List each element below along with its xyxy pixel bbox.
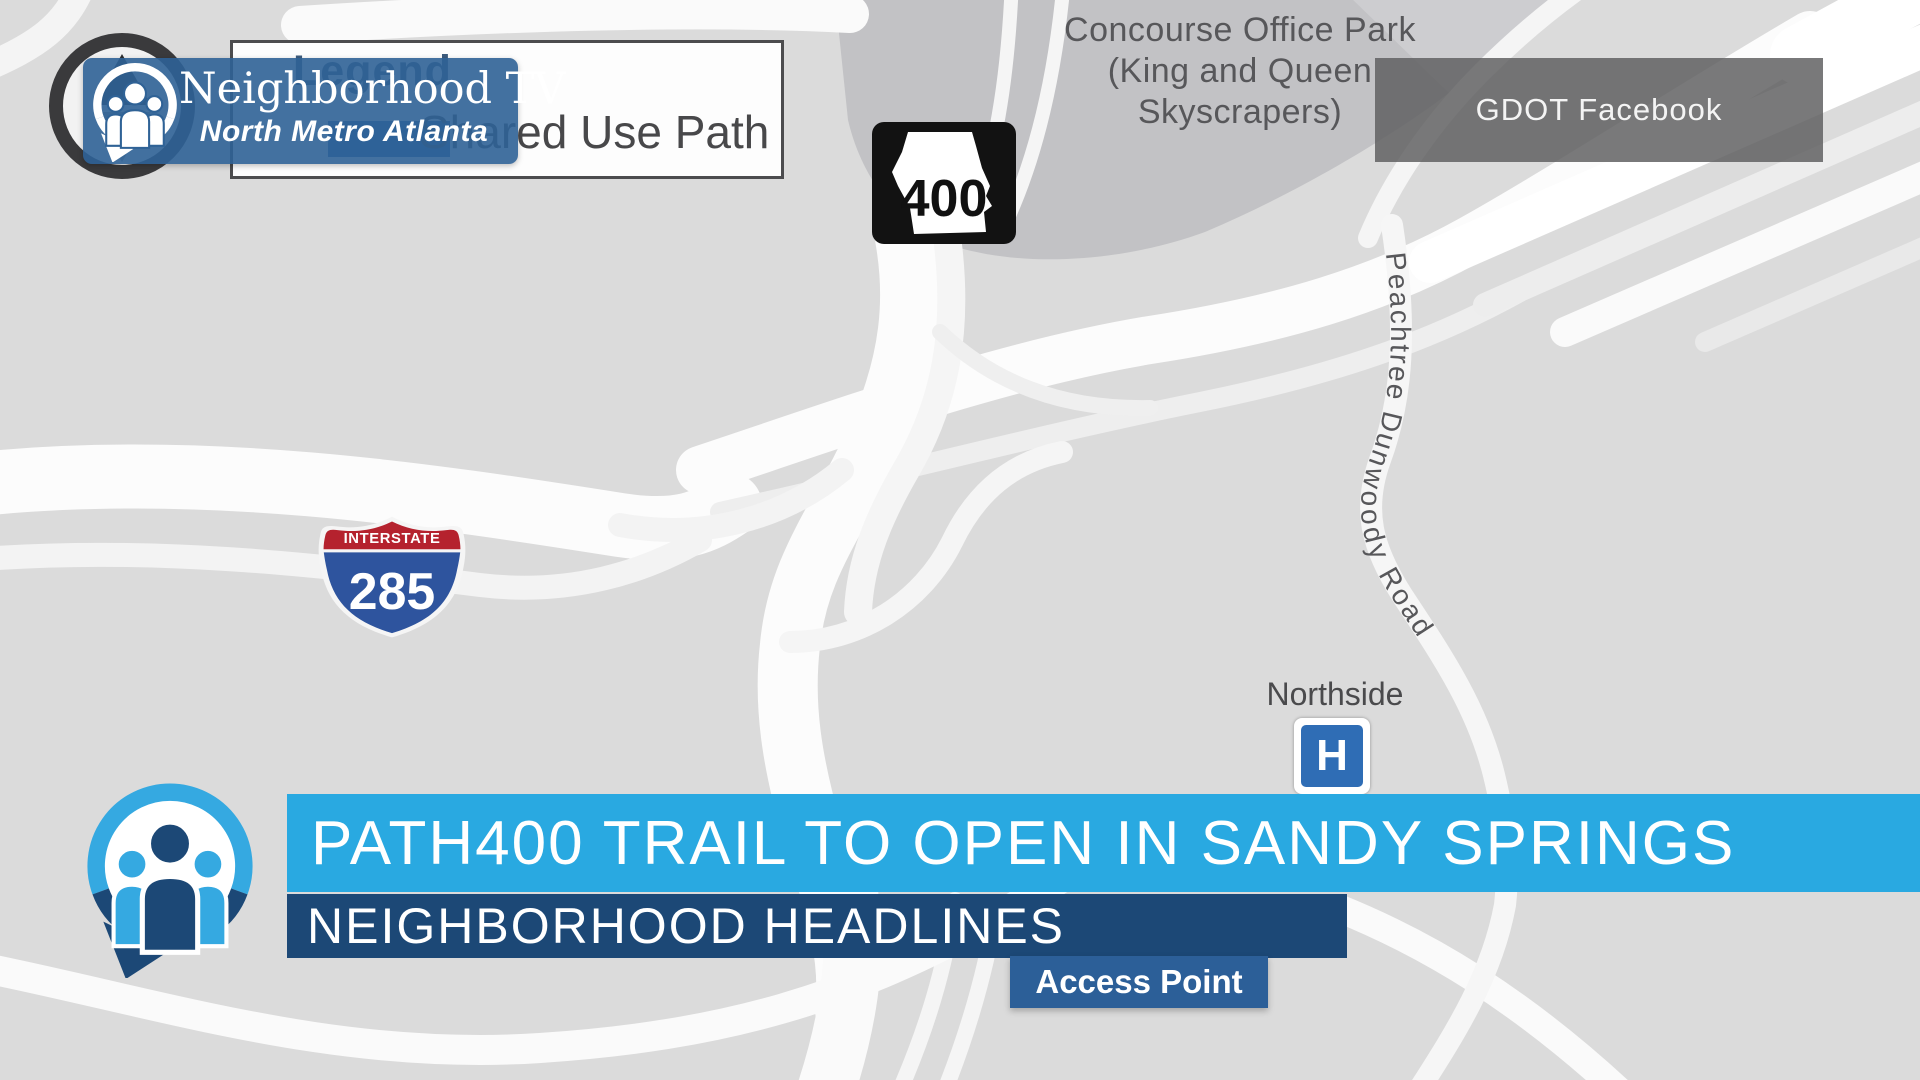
i-285-shield-icon: INTERSTATE 285 <box>318 515 466 639</box>
office-park-line1: Concourse Office Park <box>1020 10 1460 51</box>
state-route-number: 400 <box>901 170 988 228</box>
topic-text: NEIGHBORHOOD HEADLINES <box>307 897 1065 955</box>
access-point-text: Access Point <box>1035 963 1242 1001</box>
headline-bar: PATH400 TRAIL TO OPEN IN SANDY SPRINGS <box>287 794 1920 892</box>
station-name-block: Neighborhood TV North Metro Atlanta <box>179 66 509 149</box>
station-name: Neighborhood TV <box>179 66 509 113</box>
hospital-h-symbol: H <box>1301 725 1363 787</box>
topic-bar: NEIGHBORHOOD HEADLINES <box>287 894 1347 958</box>
news-map-screen: Peachtree Dunwoody Road Concourse Office… <box>0 0 1920 1080</box>
ga-400-shield-icon: 400 <box>870 120 1018 246</box>
show-people-bubble-icon <box>72 778 268 978</box>
image-credit-label: GDOT Facebook <box>1476 92 1723 128</box>
hospital-label: Northside <box>1245 676 1425 713</box>
interstate-word: INTERSTATE <box>344 531 441 547</box>
image-credit-badge: GDOT Facebook <box>1375 58 1823 162</box>
access-point-label: Access Point <box>1010 956 1268 1008</box>
interstate-number: 285 <box>349 562 435 620</box>
station-people-bubble-icon <box>85 60 185 162</box>
station-region: North Metro Atlanta <box>179 115 509 149</box>
hospital-icon: H <box>1294 718 1370 794</box>
headline-text: PATH400 TRAIL TO OPEN IN SANDY SPRINGS <box>311 808 1735 879</box>
station-banner: Neighborhood TV North Metro Atlanta <box>83 58 518 164</box>
